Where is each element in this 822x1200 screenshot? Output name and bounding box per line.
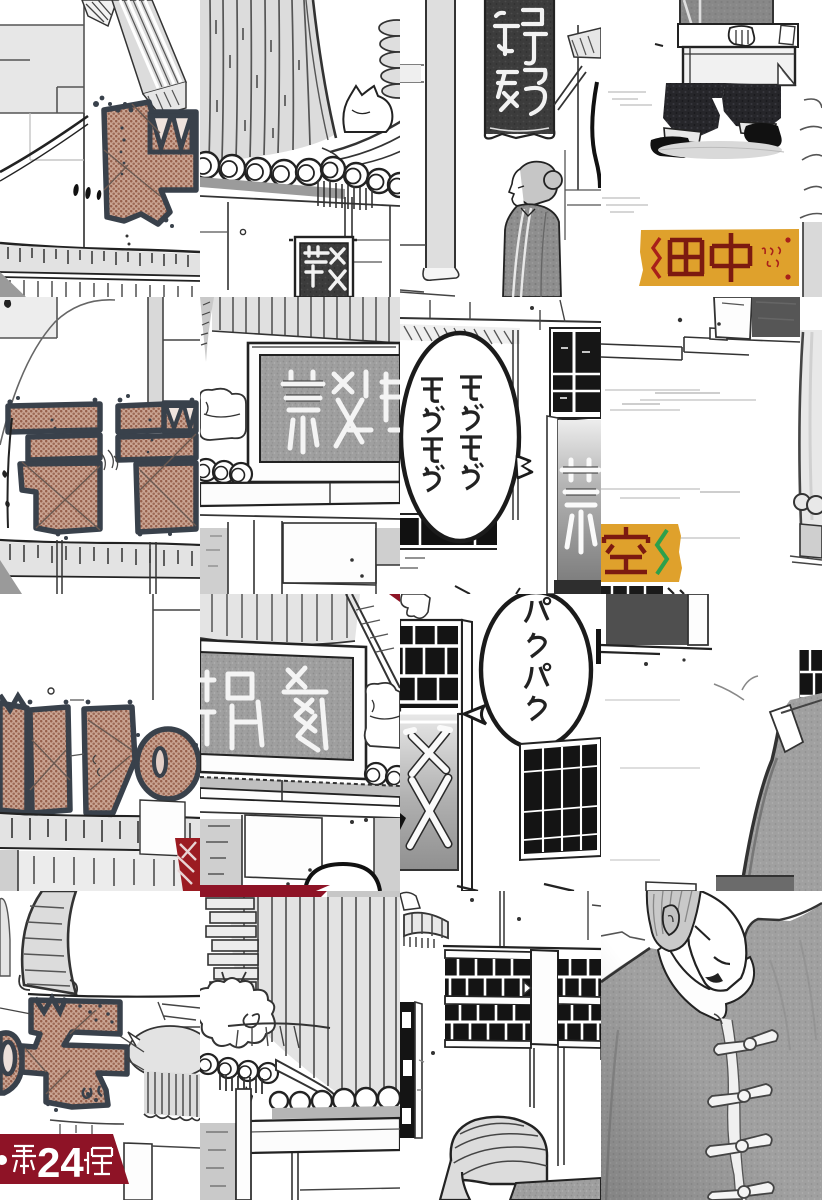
svg-text:24: 24 (37, 1139, 84, 1186)
